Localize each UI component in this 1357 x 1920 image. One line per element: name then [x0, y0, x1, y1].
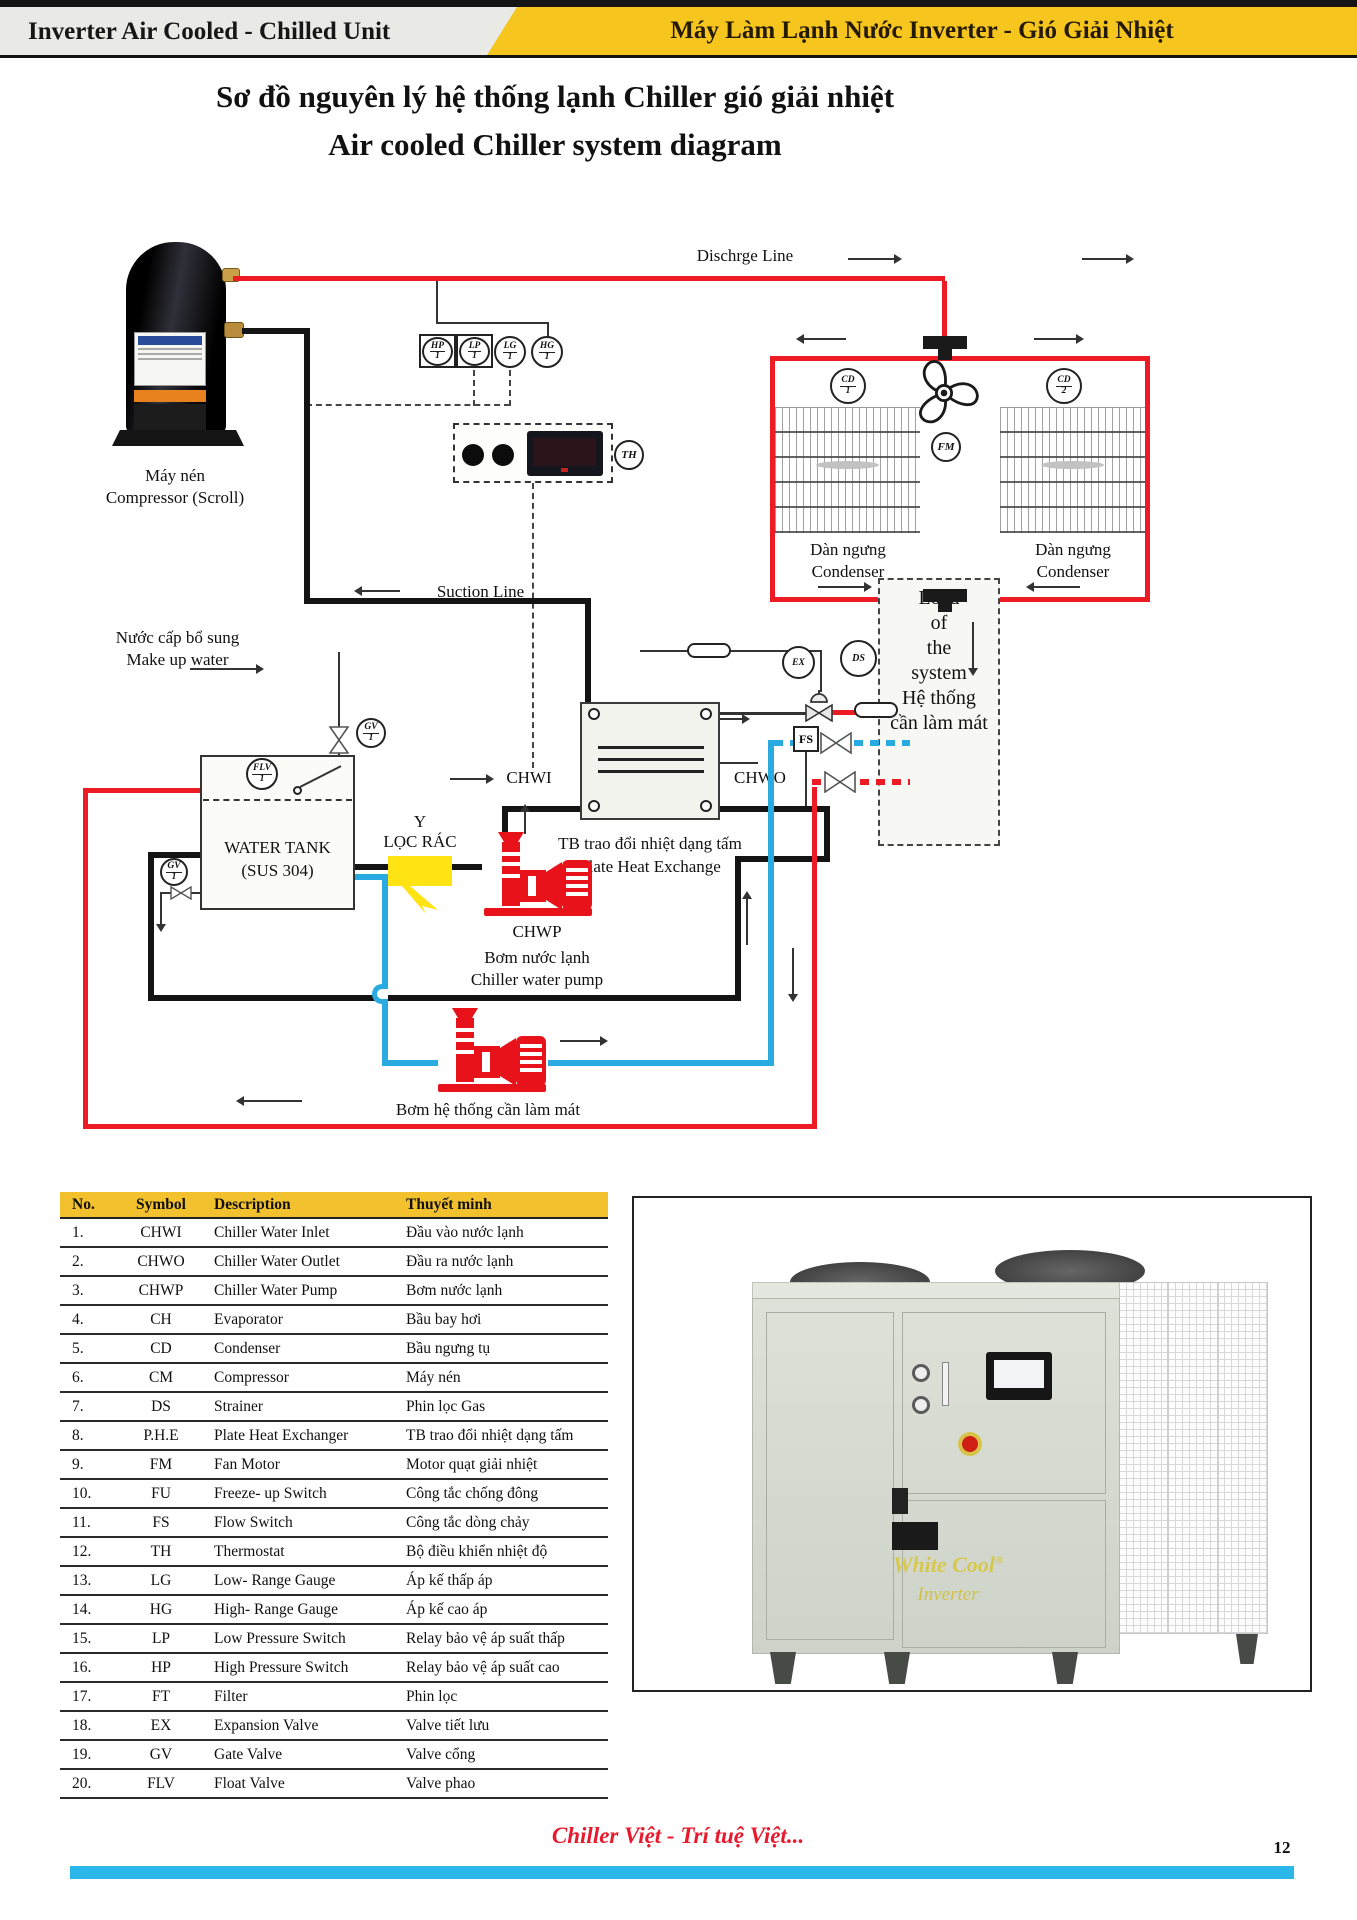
flow-arrow-up-icon [524, 806, 526, 834]
chwo-label: CHWO [724, 768, 796, 788]
cell-description: Gate Valve [210, 1746, 396, 1764]
cell-description: Expansion Valve [210, 1717, 396, 1735]
table-row: 8.P.H.EPlate Heat ExchangerTB trao đổi n… [60, 1422, 608, 1451]
chwp-label: CHWP [477, 922, 597, 942]
unit-model: Inverter [883, 1584, 1013, 1607]
cell-symbol: P.H.E [112, 1427, 210, 1445]
cell-description: Evaporator [210, 1311, 396, 1329]
cell-description: Plate Heat Exchanger [210, 1427, 396, 1445]
plate-heat-exchanger [580, 702, 720, 820]
table-row: 9.FMFan MotorMotor quạt giải nhiệt [60, 1451, 608, 1480]
compressor-base [112, 430, 244, 446]
cell-symbol: FS [112, 1514, 210, 1532]
table-row: 16.HPHigh Pressure SwitchRelay bảo vệ áp… [60, 1654, 608, 1683]
cell-symbol: CM [112, 1369, 210, 1387]
cell-no: 19. [60, 1746, 112, 1764]
condenser2-caption-vi: Dàn ngưng [1003, 540, 1143, 560]
tag-flv: FLV1 [246, 758, 278, 790]
header-left-title: Inverter Air Cooled - Chilled Unit [28, 17, 390, 47]
flow-arrow-left-icon [1028, 586, 1080, 588]
load-line: the [878, 636, 1000, 660]
table-row: 3.CHWPChiller Water PumpBơm nước lạnh [60, 1277, 608, 1306]
cell-thuyet_minh: Công tắc dòng chảy [396, 1514, 608, 1532]
cell-thuyet_minh: Motor quạt giải nhiệt [396, 1456, 608, 1474]
cell-description: Chiller Water Inlet [210, 1224, 396, 1242]
system-pump-caption: Bơm hệ thống cần làm mát [358, 1100, 618, 1120]
tev-sensing-bulb [687, 643, 731, 658]
cell-symbol: FLV [112, 1775, 210, 1793]
fan-propeller-icon [906, 356, 982, 430]
cell-thuyet_minh: Bơm nước lạnh [396, 1282, 608, 1300]
cell-no: 16. [60, 1659, 112, 1677]
header-right-title: Máy Làm Lạnh Nước Inverter - Gió Giải Nh… [487, 7, 1357, 55]
tag-lp: LP1 [459, 337, 490, 366]
cell-symbol: FU [112, 1485, 210, 1503]
cell-no: 18. [60, 1717, 112, 1735]
supply-valve-icon [820, 732, 852, 754]
cell-no: 3. [60, 1282, 112, 1300]
float-pivot [293, 786, 302, 795]
table-row: 2.CHWOChiller Water OutletĐầu ra nước lạ… [60, 1248, 608, 1277]
liquid-pipe [832, 710, 856, 715]
controller-display [527, 431, 603, 476]
cell-thuyet_minh: Bầu bay hơi [396, 1311, 608, 1329]
cell-description: Chiller Water Outlet [210, 1253, 396, 1271]
drain-valve-icon [170, 886, 192, 900]
flow-switch-stub [805, 752, 807, 806]
cell-symbol: GV [112, 1746, 210, 1764]
flow-arrow-right-icon [560, 1040, 606, 1042]
suction-pipe [242, 328, 306, 334]
cell-symbol: LG [112, 1572, 210, 1590]
cell-no: 9. [60, 1456, 112, 1474]
condenser-coil-2 [1000, 407, 1145, 533]
flow-arrow-left-icon [798, 338, 846, 340]
unit-control-panel [902, 1312, 1106, 1494]
system-pump-icon [436, 1008, 548, 1092]
return-pipe [148, 852, 154, 995]
table-row: 19.GVGate ValveValve cổng [60, 1741, 608, 1770]
symbol-table-body: 1.CHWIChiller Water InletĐầu vào nước lạ… [60, 1219, 608, 1799]
unit-gauge [912, 1364, 930, 1382]
warm-return-pipe [83, 793, 88, 1129]
table-row: 5.CDCondenserBầu ngưng tụ [60, 1335, 608, 1364]
compressor-lower [134, 404, 206, 430]
cell-no: 7. [60, 1398, 112, 1416]
water-tank-caption-1: WATER TANK [205, 838, 350, 858]
col-header-description: Description [210, 1196, 396, 1214]
cell-thuyet_minh: Valve cổng [396, 1746, 608, 1764]
cell-no: 14. [60, 1601, 112, 1619]
cell-thuyet_minh: Valve phao [396, 1775, 608, 1793]
symbol-table: No. Symbol Description Thuyết minh 1.CHW… [60, 1192, 608, 1799]
flow-switch-box: FS [793, 726, 819, 752]
table-row: 13.LGLow- Range GaugeÁp kế thấp áp [60, 1567, 608, 1596]
cell-symbol: HP [112, 1659, 210, 1677]
cell-thuyet_minh: Relay bảo vệ áp suất thấp [396, 1630, 608, 1648]
chwi-label: CHWI [494, 768, 564, 788]
flow-arrow-left-icon [356, 590, 400, 592]
suction-pipe [304, 328, 310, 604]
table-row: 18.EXExpansion ValveValve tiết lưu [60, 1712, 608, 1741]
cell-symbol: CHWI [112, 1224, 210, 1242]
tag-fm: FM [931, 432, 961, 462]
makeup-valve-icon [329, 726, 349, 754]
tag-ds: DS [840, 640, 877, 677]
signal-bus-line [306, 404, 510, 406]
gauge-tap-line [436, 281, 438, 324]
page-title-vi: Sơ đồ nguyên lý hệ thống lạnh Chiller gi… [0, 78, 1110, 115]
load-line: system [878, 661, 1000, 685]
table-row: 15.LPLow Pressure SwitchRelay bảo vệ áp … [60, 1625, 608, 1654]
cell-thuyet_minh: Máy nén [396, 1369, 608, 1387]
cell-thuyet_minh: Bộ điều khiển nhiệt độ [396, 1543, 608, 1561]
col-header-thuyet-minh: Thuyết minh [396, 1196, 608, 1214]
cell-description: Low- Range Gauge [210, 1572, 396, 1590]
cell-thuyet_minh: Đầu ra nước lạnh [396, 1253, 608, 1271]
cell-no: 1. [60, 1224, 112, 1242]
discharge-line-label: Dischrge Line [655, 246, 835, 266]
flow-arrow-down-icon [792, 948, 794, 1000]
cell-no: 11. [60, 1514, 112, 1532]
drain-arrow-down-icon [160, 894, 162, 930]
controller-button [462, 444, 484, 466]
cell-description: Chiller Water Pump [210, 1282, 396, 1300]
unit-sight-glass [942, 1362, 949, 1406]
unit-gauge [912, 1396, 930, 1414]
cell-description: Float Valve [210, 1775, 396, 1793]
tee-fitting [923, 336, 967, 349]
condenser2-caption-en: Condenser [1003, 562, 1143, 582]
cell-description: Freeze- up Switch [210, 1485, 396, 1503]
col-header-no: No. [60, 1196, 112, 1214]
chwo-pipe [824, 812, 830, 862]
cell-no: 8. [60, 1427, 112, 1445]
cell-description: Condenser [210, 1340, 396, 1358]
footer-slogan: Chiller Việt - Trí tuệ Việt... [398, 1822, 958, 1850]
cell-no: 5. [60, 1340, 112, 1358]
phe-port [588, 800, 600, 812]
expansion-valve-icon [804, 690, 834, 722]
unit-left-door [766, 1312, 894, 1640]
tee-fitting [923, 589, 967, 602]
strainer-caption-y: Y [390, 812, 450, 832]
condenser-right-pipe [1145, 361, 1150, 602]
cell-description: Low Pressure Switch [210, 1630, 396, 1648]
header-underline [0, 55, 1357, 58]
header-yellow-banner: Máy Làm Lạnh Nước Inverter - Gió Giải Nh… [487, 7, 1357, 55]
tag-ex: EX [782, 646, 815, 679]
y-strainer-icon [388, 850, 454, 914]
return-valve-icon [824, 771, 856, 793]
cell-description: Compressor [210, 1369, 396, 1387]
cell-no: 17. [60, 1688, 112, 1706]
phe-port [588, 708, 600, 720]
cell-thuyet_minh: Áp kế cao áp [396, 1601, 608, 1619]
flow-arrow-right-icon [848, 258, 900, 260]
discharge-drop-pipe [942, 281, 947, 338]
tee-fitting-stem [938, 349, 952, 360]
flow-arrow-right-icon [818, 586, 870, 588]
cell-description: Fan Motor [210, 1456, 396, 1474]
cell-description: High Pressure Switch [210, 1659, 396, 1677]
tag-hg: HG1 [531, 336, 563, 368]
load-line: of [878, 611, 1000, 635]
suction-line-label: Suction Line [408, 582, 553, 602]
tev-equalizer-line [820, 652, 822, 692]
warm-return-pipe [812, 787, 817, 1124]
cell-symbol: LP [112, 1630, 210, 1648]
table-row: 6.CMCompressorMáy nén [60, 1364, 608, 1393]
flow-arrow-right-icon [190, 668, 262, 670]
pipe-crossover-hop [372, 984, 388, 1004]
cell-symbol: DS [112, 1398, 210, 1416]
tag-hp: HP1 [422, 337, 453, 366]
discharge-pipe [233, 276, 945, 281]
cell-no: 13. [60, 1572, 112, 1590]
table-row: 4.CHEvaporatorBầu bay hơi [60, 1306, 608, 1335]
unit-latch [892, 1488, 908, 1514]
top-black-bar [0, 0, 1357, 7]
table-row: 1.CHWIChiller Water InletĐầu vào nước lạ… [60, 1219, 608, 1248]
cell-symbol: CH [112, 1311, 210, 1329]
document-page: Inverter Air Cooled - Chilled Unit Máy L… [0, 0, 1357, 1920]
condenser-coil-1 [775, 407, 920, 533]
cell-thuyet_minh: Phin lọc Gas [396, 1398, 608, 1416]
cell-description: Filter [210, 1688, 396, 1706]
gauge-header-line [436, 322, 549, 324]
chilled-supply-pipe [382, 1004, 388, 1064]
cell-symbol: FT [112, 1688, 210, 1706]
chwp-caption-en: Chiller water pump [447, 970, 627, 990]
cell-description: Strainer [210, 1398, 396, 1416]
cell-no: 10. [60, 1485, 112, 1503]
chwo-pipe [735, 862, 741, 995]
flow-arrow-left-icon [238, 1100, 302, 1102]
cell-thuyet_minh: Relay bảo vệ áp suất cao [396, 1659, 608, 1677]
suction-pipe [585, 604, 591, 710]
chilled-supply-pipe [382, 1060, 438, 1066]
flow-arrow-right-icon [1034, 338, 1082, 340]
tag-gv-fill: GV1 [356, 718, 386, 748]
cell-description: Thermostat [210, 1543, 396, 1561]
compressor-label [134, 332, 206, 386]
table-row: 10.FUFreeze- up SwitchCông tắc chống đôn… [60, 1480, 608, 1509]
warm-return-pipe [83, 1124, 817, 1129]
flow-arrow-right-icon [450, 778, 492, 780]
flow-arrow-up-icon [746, 893, 748, 945]
cell-thuyet_minh: Áp kế thấp áp [396, 1572, 608, 1590]
cell-no: 12. [60, 1543, 112, 1561]
cell-thuyet_minh: Phin lọc [396, 1688, 608, 1706]
cell-symbol: FM [112, 1456, 210, 1474]
cell-thuyet_minh: TB trao đổi nhiệt dạng tấm [396, 1427, 608, 1445]
unit-brand: White Cool® [858, 1552, 1038, 1578]
unit-display [986, 1352, 1052, 1400]
warm-return-pipe [83, 788, 202, 793]
lg-signal-line [509, 370, 511, 406]
page-number: 12 [1262, 1838, 1302, 1858]
tank-outlet-pipe [355, 864, 391, 870]
phe-port [700, 800, 712, 812]
lp-signal-line [473, 370, 475, 406]
tag-th: TH [614, 440, 644, 470]
liquid-line-to-phe [710, 712, 806, 715]
compressor-orange-strip [134, 390, 206, 402]
condenser1-caption-vi: Dàn ngưng [778, 540, 918, 560]
cell-no: 6. [60, 1369, 112, 1387]
table-row: 20.FLVFloat ValveValve phao [60, 1770, 608, 1799]
strainer-outlet-pipe [450, 864, 482, 870]
filter-drier-symbol [854, 702, 898, 718]
thermostat-sensor-line [532, 483, 534, 768]
chwi-pipe [502, 806, 592, 812]
cell-no: 2. [60, 1253, 112, 1271]
unit-vent [892, 1522, 938, 1550]
phe-port [700, 708, 712, 720]
tag-cd1: CD1 [830, 368, 866, 404]
tag-cd2: CD2 [1046, 368, 1082, 404]
suction-fitting [224, 322, 244, 338]
table-row: 17.FTFilterPhin lọc [60, 1683, 608, 1712]
return-pipe [154, 852, 202, 858]
chilled-supply-pipe [768, 740, 774, 1066]
cell-symbol: HG [112, 1601, 210, 1619]
cell-description: High- Range Gauge [210, 1601, 396, 1619]
water-tank-caption-2: (SUS 304) [205, 861, 350, 881]
cell-symbol: CHWO [112, 1253, 210, 1271]
water-tank [200, 755, 355, 910]
cell-thuyet_minh: Đầu vào nước lạnh [396, 1224, 608, 1242]
cell-description: Flow Switch [210, 1514, 396, 1532]
table-row: 12.THThermostatBộ điều khiển nhiệt độ [60, 1538, 608, 1567]
cell-symbol: EX [112, 1717, 210, 1735]
col-header-symbol: Symbol [112, 1196, 210, 1214]
cell-no: 20. [60, 1775, 112, 1793]
return-pipe [148, 995, 741, 1001]
cell-no: 4. [60, 1311, 112, 1329]
cell-thuyet_minh: Valve tiết lưu [396, 1717, 608, 1735]
emergency-button [958, 1432, 982, 1456]
chilled-supply-pipe [548, 1060, 774, 1066]
unit-condenser-grid [1118, 1282, 1268, 1634]
chwp-caption-vi: Bơm nước lạnh [457, 948, 617, 968]
cell-symbol: CHWP [112, 1282, 210, 1300]
tag-lg: LG1 [494, 336, 526, 368]
table-row: 7.DSStrainerPhin lọc Gas [60, 1393, 608, 1422]
controller-button [492, 444, 514, 466]
table-header-row: No. Symbol Description Thuyết minh [60, 1192, 608, 1219]
compressor-caption-en: Compressor (Scroll) [55, 488, 295, 508]
cell-symbol: CD [112, 1340, 210, 1358]
flow-arrow-right-icon [1082, 258, 1132, 260]
table-row: 11.FSFlow SwitchCông tắc dòng chảy [60, 1509, 608, 1538]
compressor-caption-vi: Máy nén [85, 466, 265, 486]
water-level-line [203, 799, 352, 801]
makeup-water-vi: Nước cấp bổ sung [75, 628, 280, 648]
tag-gv-drain: GV1 [160, 858, 188, 886]
chilled-water-pump-icon [482, 832, 594, 916]
footer-cyan-bar [70, 1866, 1294, 1879]
table-row: 14.HGHigh- Range GaugeÁp kế cao áp [60, 1596, 608, 1625]
cell-no: 15. [60, 1630, 112, 1648]
tee-fitting-stem [938, 602, 952, 612]
cell-thuyet_minh: Công tắc chống đông [396, 1485, 608, 1503]
cell-symbol: TH [112, 1543, 210, 1561]
page-title-en: Air cooled Chiller system diagram [0, 126, 1110, 163]
cell-thuyet_minh: Bầu ngưng tụ [396, 1340, 608, 1358]
